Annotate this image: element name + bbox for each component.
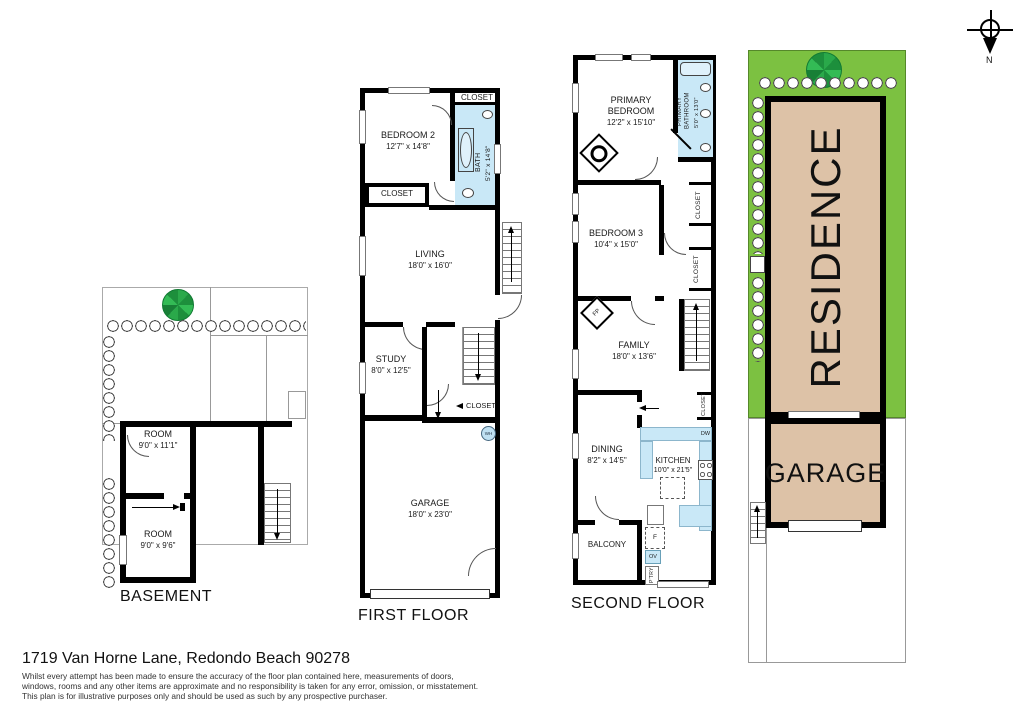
room-label: FAMILY 18'0" x 13'6" (599, 340, 669, 362)
room-name: ROOM (144, 429, 172, 440)
closet-label: CLOSET (465, 401, 497, 410)
room-label: KITCHEN 10'0" x 21'5" (647, 456, 699, 476)
bath-name: BATH (475, 134, 483, 190)
wall-segment (689, 288, 716, 291)
disclaimer-line: This plan is for illustrative purposes o… (22, 692, 582, 702)
room-dims: 9'0" x 11'1" (139, 440, 178, 451)
window (572, 221, 579, 243)
wall-segment (689, 182, 716, 185)
sink-icon (482, 110, 493, 119)
room-name: STUDY (376, 354, 407, 365)
bushes-column-icon (102, 335, 116, 441)
site-plan: RESIDENCE GARAGE (748, 50, 908, 666)
wall-segment (697, 417, 716, 420)
porch-outline (288, 391, 306, 419)
stairs-arrow (277, 489, 278, 533)
garage-door (370, 589, 490, 599)
toilet-icon (700, 143, 711, 152)
wall-segment (637, 520, 642, 585)
room-label: ROOM 9'0" x 11'1" (124, 429, 192, 451)
bushes-column-icon (751, 276, 765, 362)
wall-segment (573, 390, 637, 395)
door-arrow-head (639, 405, 646, 411)
room-dims: 18'0" x 23'0" (408, 509, 452, 520)
window (359, 362, 366, 394)
bath-dims: 5'2" x 14'8" (485, 128, 493, 198)
tree-icon (162, 289, 194, 321)
room-label: DINING 8'2" x 14'5" (579, 444, 635, 466)
room-label: BEDROOM 2 12'7" x 14'8" (372, 130, 444, 152)
sink-icon (700, 83, 711, 92)
stairs-arrow-head (754, 505, 760, 512)
window (572, 533, 579, 559)
entry-arrow-head (173, 504, 180, 510)
bushes-row-icon (758, 76, 898, 90)
room-name: ROOM (144, 529, 172, 540)
residence-label: RESIDENCE (822, 125, 830, 388)
wall-segment (360, 322, 403, 327)
window (494, 144, 501, 174)
closet-label: CLOSET (700, 394, 708, 416)
wall-segment (573, 180, 661, 185)
window (572, 83, 579, 113)
wall-segment (429, 205, 500, 210)
window (631, 54, 651, 61)
kitchen-counter (679, 505, 712, 527)
footprint-divider (266, 335, 267, 423)
stairs-arrow-head (693, 303, 699, 310)
room-dims: 18'0" x 16'0" (408, 260, 452, 271)
room-label: STUDY 8'0" x 12'5" (362, 354, 420, 376)
wall-segment (678, 157, 716, 162)
room-dims: 18'0" x 13'6" (612, 351, 656, 362)
second-floor-title: SECOND FLOOR (571, 595, 705, 613)
room-dims: 8'2" x 14'5" (587, 455, 626, 466)
bushes-row-icon (106, 319, 306, 333)
wall-segment (426, 322, 455, 327)
fireplace-label: FP (592, 308, 602, 318)
closet-arrow (456, 403, 463, 409)
window (572, 349, 579, 379)
primary-bathroom-dims: 5'0" x 13'0" (693, 89, 701, 137)
utility-box (750, 256, 765, 273)
bushes-column-icon (751, 96, 765, 254)
closet-label: CLOSET (369, 189, 425, 198)
first-floor-title: FIRST FLOOR (358, 607, 469, 625)
wall-segment (450, 93, 455, 181)
wall-segment (422, 417, 500, 423)
garage-door (788, 520, 862, 532)
water-heater-icon: WH (481, 426, 496, 441)
room-dims: 12'7" x 14'8" (386, 141, 430, 152)
room-name: LIVING (415, 249, 445, 260)
door-arrow (645, 408, 659, 409)
toilet-icon (462, 188, 474, 198)
room-dims: 10'0" x 21'5" (654, 466, 692, 476)
fireplace-ring (587, 141, 611, 165)
floor-plan-page: ROOM 9'0" x 11'1" ROOM 9'0" x 9'6" BASEM… (0, 0, 1024, 724)
room-label: GARAGE 18'0" x 23'0" (394, 498, 466, 520)
room-dims: 9'0" x 9'6" (141, 540, 176, 551)
north-label: N (986, 55, 993, 65)
basement-title: BASEMENT (120, 588, 212, 606)
garage-building: GARAGE (765, 418, 886, 528)
room-name: PRIMARY BEDROOM (596, 95, 666, 117)
bathtub-icon (680, 62, 711, 76)
wall-segment (659, 185, 664, 255)
bathtub-icon (460, 132, 472, 168)
wall-segment (573, 520, 595, 525)
window (657, 581, 709, 588)
address-title: 1719 Van Horne Lane, Redondo Beach 90278 (22, 650, 582, 668)
footer: 1719 Van Horne Lane, Redondo Beach 90278… (22, 650, 582, 701)
fridge-icon: F (645, 527, 665, 549)
wall-segment (689, 223, 716, 226)
window (572, 193, 579, 215)
wall-segment (196, 421, 292, 427)
room-name: BEDROOM 2 (381, 130, 435, 141)
primary-bathroom-name: PRIMARY BATHROOM (677, 85, 694, 137)
north-compass: N (963, 10, 1019, 70)
stairs-arrow (757, 510, 758, 538)
window (595, 54, 623, 61)
stairs-arrow-head (274, 533, 280, 540)
wall-segment (655, 296, 664, 301)
room-dims: 8'0" x 12'5" (371, 365, 410, 376)
pantry-label: P'TRY (648, 566, 656, 585)
compass-circle (980, 19, 1000, 39)
room-label: PRIMARY BEDROOM 12'2" x 15'10" (595, 95, 667, 128)
north-arrow-icon (983, 38, 997, 54)
first-floor-plan: CLOSET BATH 5'2" x 14'8" BEDROOM 2 12'7"… (358, 86, 526, 638)
column-outline (647, 505, 664, 525)
room-name: BEDROOM 3 (589, 228, 643, 239)
footprint-divider (210, 335, 308, 336)
room-name: DINING (591, 444, 623, 455)
window (359, 236, 366, 276)
stairs-arrow (478, 333, 479, 375)
sink-icon (700, 109, 711, 118)
balcony-label: BALCONY (581, 540, 633, 549)
dishwasher-label: DW (699, 431, 712, 437)
closet-label: CLOSET (458, 93, 496, 102)
window (572, 433, 579, 459)
room-name: GARAGE (411, 498, 450, 509)
wall-segment (360, 415, 427, 421)
room-dims: 12'2" x 15'10" (607, 117, 655, 128)
second-floor-plan: PRIMARY BATHROOM 5'0" x 13'0" PRIMARY BE… (571, 53, 739, 628)
door-arc (498, 295, 522, 319)
wall-segment (637, 390, 642, 402)
window (388, 87, 430, 94)
wall-segment (689, 247, 716, 250)
closet-label: CLOSET (693, 252, 701, 286)
closet-label: CLOSET (695, 187, 703, 223)
residence-building: RESIDENCE (765, 96, 886, 418)
room-label: ROOM 9'0" x 9'6" (124, 529, 192, 551)
wall-segment (126, 493, 164, 499)
wall-segment (453, 102, 495, 105)
room-label: BEDROOM 3 10'4" x 15'0" (583, 228, 649, 250)
room-name: KITCHEN (655, 456, 690, 466)
bushes-column-icon (102, 477, 116, 589)
footprint-divider (210, 287, 211, 423)
stairs-arrow-head (508, 226, 514, 233)
stairs-arrow-head (475, 374, 481, 381)
room-label: LIVING 18'0" x 16'0" (394, 249, 466, 271)
stove-icon (698, 460, 713, 480)
room-name: FAMILY (618, 340, 649, 351)
wall-segment (422, 327, 427, 421)
entry-arrow (132, 507, 174, 508)
stairs-arrow (696, 309, 697, 361)
wall-segment (184, 493, 194, 499)
kitchen-island (660, 477, 685, 499)
window (359, 110, 366, 144)
garage-label: GARAGE (765, 458, 887, 489)
door-arrow (438, 390, 439, 412)
wall-segment (180, 503, 185, 511)
room-dims: 10'4" x 15'0" (594, 239, 638, 250)
oven-icon: OV (645, 550, 661, 564)
stairs-arrow (511, 232, 512, 282)
basement-plan: ROOM 9'0" x 11'1" ROOM 9'0" x 9'6" BASEM… (100, 283, 315, 613)
